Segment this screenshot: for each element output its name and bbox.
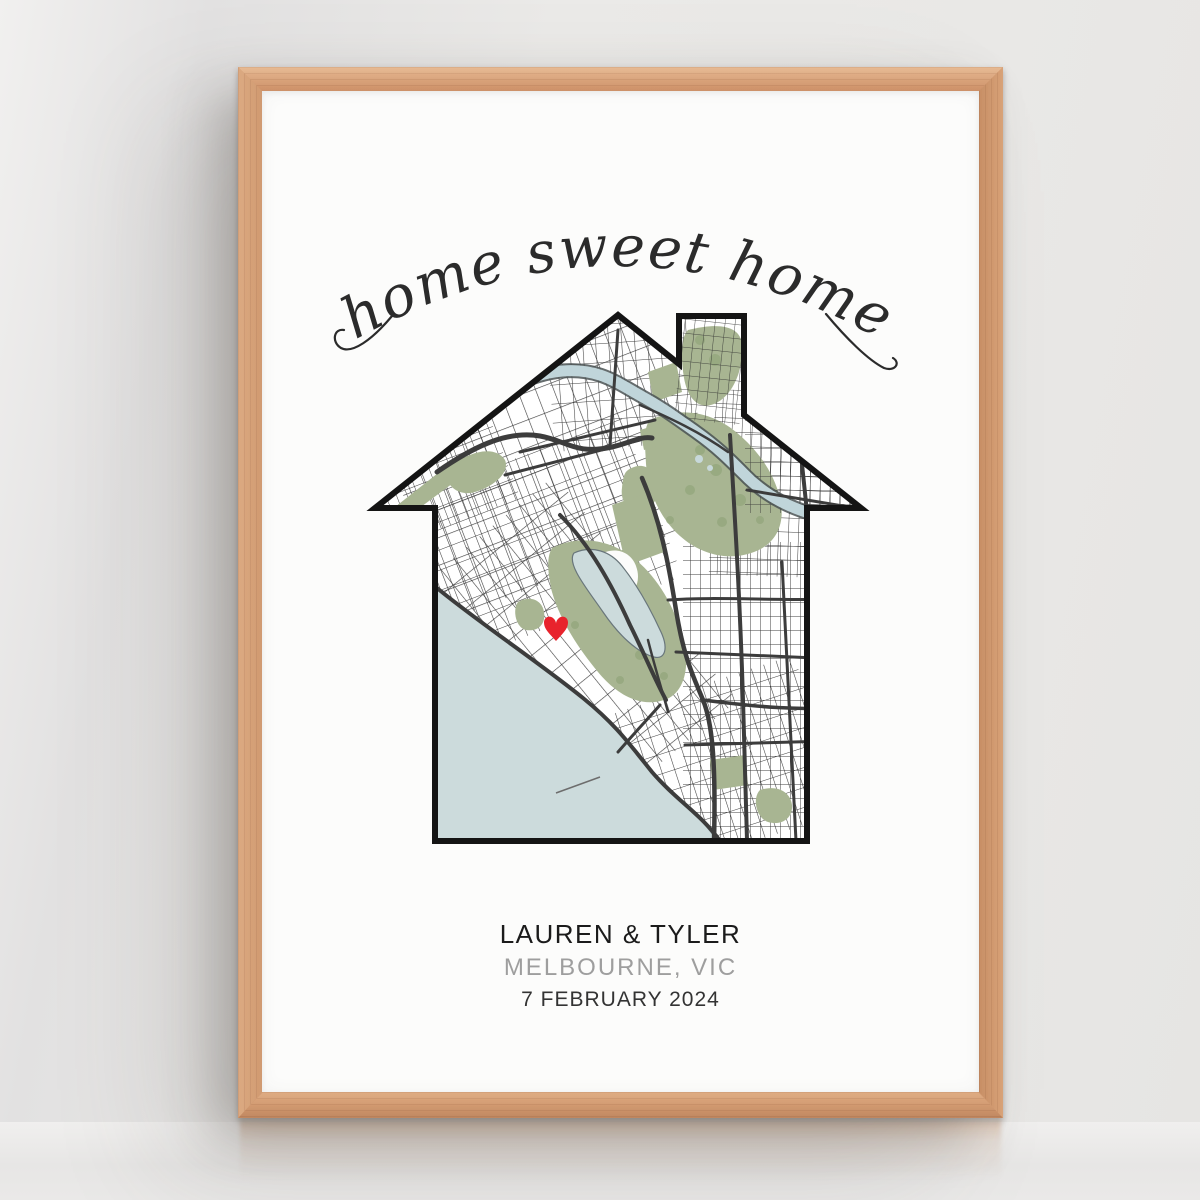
names-text: LAUREN & TYLER <box>262 917 979 951</box>
frame-rail-left <box>238 67 262 1118</box>
scene: home sweet home <box>0 0 1200 1200</box>
frame-rail-right <box>979 67 1003 1118</box>
picture-frame: home sweet home <box>238 67 1003 1118</box>
frame-reflection <box>240 1121 1001 1183</box>
caption: LAUREN & TYLER MELBOURNE, VIC 7 FEBRUARY… <box>262 917 979 1014</box>
frame-rail-bottom <box>238 1092 1003 1118</box>
location-text: MELBOURNE, VIC <box>262 951 979 985</box>
frame-rail-top <box>238 67 1003 91</box>
house-map <box>353 305 880 886</box>
date-text: 7 FEBRUARY 2024 <box>262 985 979 1014</box>
poster: home sweet home <box>262 91 979 1092</box>
